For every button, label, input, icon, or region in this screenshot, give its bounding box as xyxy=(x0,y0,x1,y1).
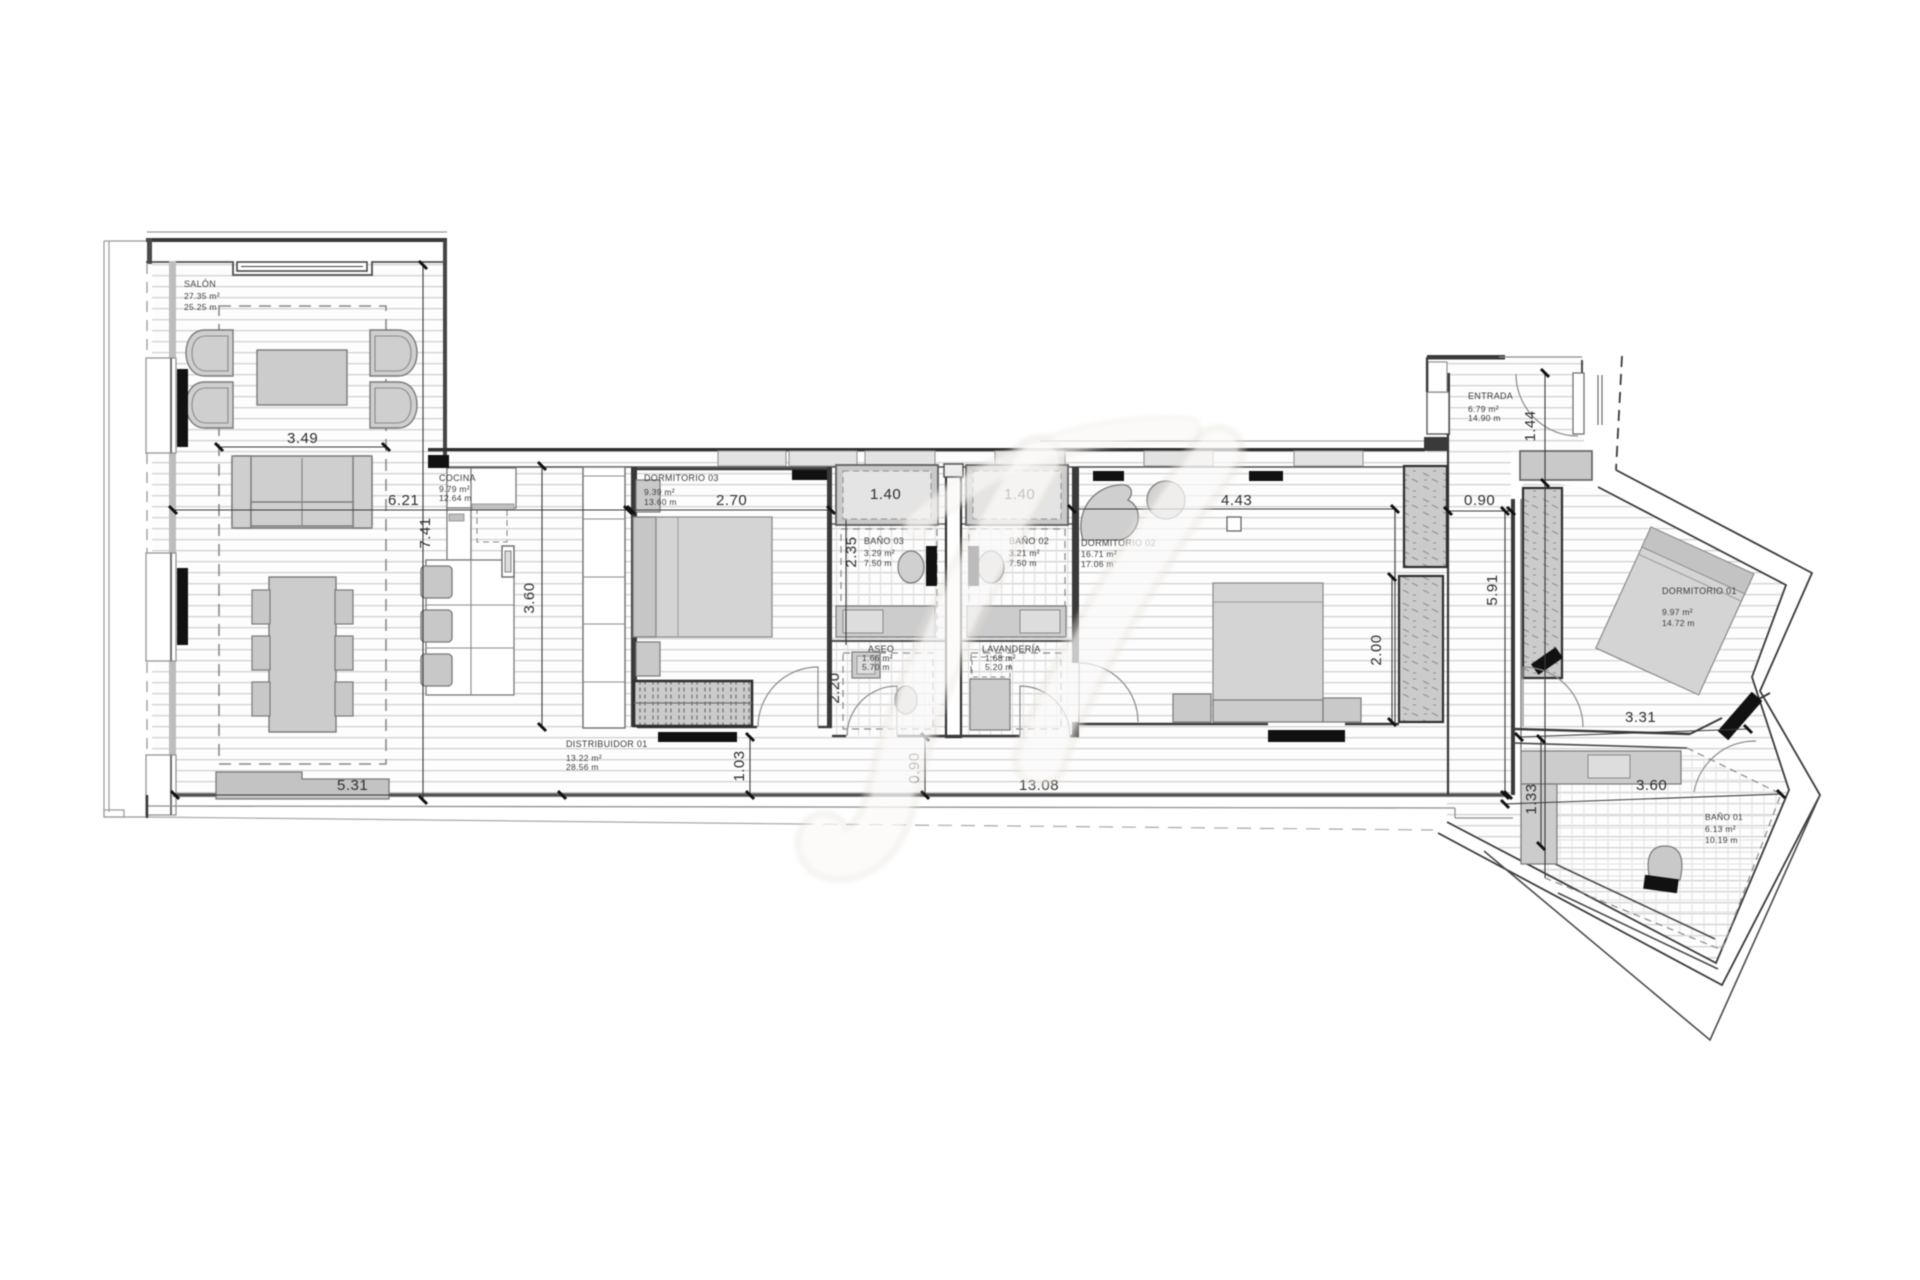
svg-text:3.60: 3.60 xyxy=(521,582,538,613)
svg-text:2.35: 2.35 xyxy=(843,536,860,567)
svg-text:27.35 m²: 27.35 m² xyxy=(184,291,220,301)
svg-text:4.43: 4.43 xyxy=(1221,492,1252,509)
svg-text:7.41: 7.41 xyxy=(417,517,434,548)
svg-text:0.90: 0.90 xyxy=(1464,492,1495,509)
svg-text:DORMITORIO 01: DORMITORIO 01 xyxy=(1662,586,1737,596)
svg-text:3.60: 3.60 xyxy=(1636,777,1667,794)
svg-text:SALÓN: SALÓN xyxy=(184,279,216,289)
svg-text:3.31: 3.31 xyxy=(1625,709,1656,726)
svg-text:DORMITORIO 03: DORMITORIO 03 xyxy=(644,473,719,483)
svg-text:5.91: 5.91 xyxy=(1484,574,1501,605)
svg-text:5.20 m: 5.20 m xyxy=(985,662,1013,672)
svg-text:BAÑO 03: BAÑO 03 xyxy=(864,536,904,546)
svg-text:10.19 m: 10.19 m xyxy=(1705,835,1738,845)
svg-text:COCINA: COCINA xyxy=(439,473,476,483)
svg-text:14.90 m: 14.90 m xyxy=(1468,413,1501,423)
svg-text:2.00: 2.00 xyxy=(1368,634,1385,665)
svg-text:6.13 m²: 6.13 m² xyxy=(1705,824,1736,834)
svg-text:2.70: 2.70 xyxy=(716,492,747,509)
svg-text:1.03: 1.03 xyxy=(731,750,748,781)
svg-text:7.50 m: 7.50 m xyxy=(864,558,892,568)
svg-text:3.49: 3.49 xyxy=(287,430,318,447)
svg-text:9.97 m²: 9.97 m² xyxy=(1662,607,1693,617)
svg-text:6.21: 6.21 xyxy=(388,492,419,509)
svg-text:12.64 m: 12.64 m xyxy=(439,493,472,503)
svg-text:14.72 m: 14.72 m xyxy=(1662,618,1695,628)
svg-text:ENTRADA: ENTRADA xyxy=(1468,391,1513,401)
svg-text:5.70 m: 5.70 m xyxy=(862,662,890,672)
svg-text:3.29 m²: 3.29 m² xyxy=(864,548,895,558)
svg-text:9.39 m²: 9.39 m² xyxy=(644,487,675,497)
svg-text:BAÑO 01: BAÑO 01 xyxy=(1705,812,1743,822)
svg-text:1.44: 1.44 xyxy=(1522,410,1539,441)
svg-text:25.25 m: 25.25 m xyxy=(184,302,217,312)
svg-text:5.31: 5.31 xyxy=(337,777,368,794)
svg-text:2.20: 2.20 xyxy=(826,672,843,703)
svg-text:DISTRIBUIDOR 01: DISTRIBUIDOR 01 xyxy=(566,739,648,749)
svg-text:13.60 m: 13.60 m xyxy=(644,497,677,507)
svg-text:28.56 m: 28.56 m xyxy=(566,762,599,772)
svg-text:1.33: 1.33 xyxy=(1523,783,1540,814)
svg-text:1.40: 1.40 xyxy=(870,486,901,503)
